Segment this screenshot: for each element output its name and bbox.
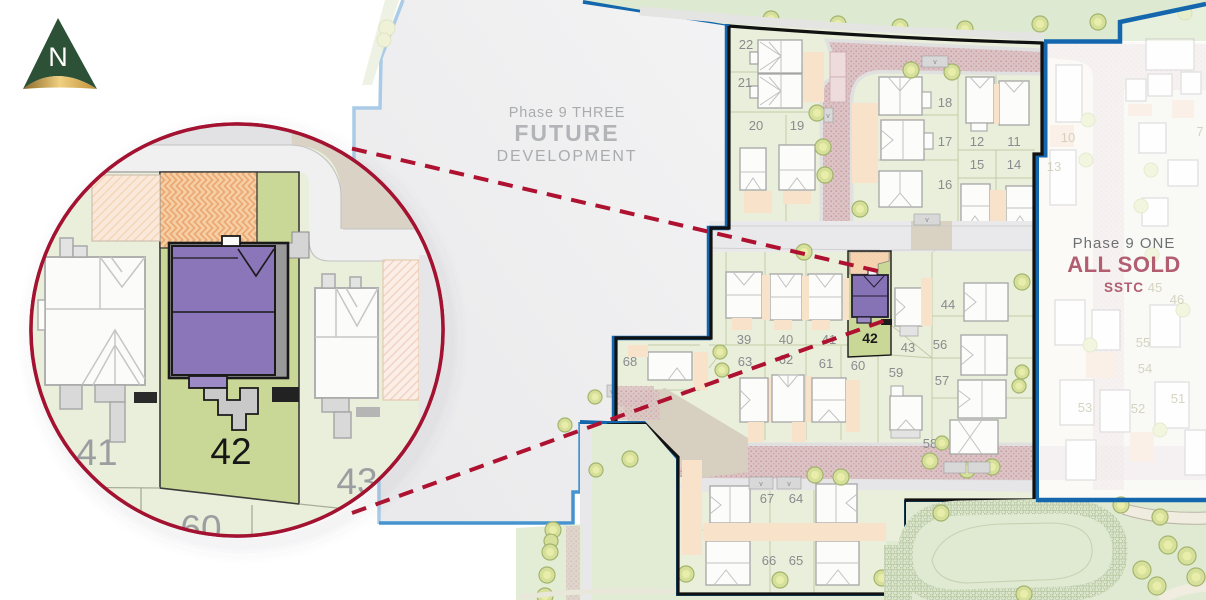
svg-text:39: 39 <box>737 332 751 347</box>
svg-text:66: 66 <box>762 553 776 568</box>
svg-text:18: 18 <box>938 95 952 110</box>
svg-text:42: 42 <box>210 431 251 472</box>
svg-text:54: 54 <box>1138 361 1152 376</box>
svg-text:12: 12 <box>970 134 984 149</box>
svg-text:FUTURE: FUTURE <box>514 120 619 146</box>
svg-text:20: 20 <box>749 118 763 133</box>
svg-text:57: 57 <box>935 373 949 388</box>
svg-text:55: 55 <box>1136 335 1150 350</box>
svg-text:11: 11 <box>1007 134 1021 149</box>
svg-text:14: 14 <box>1007 157 1021 172</box>
svg-text:v: v <box>759 481 763 488</box>
svg-text:Phase 9 ONE: Phase 9 ONE <box>1073 235 1176 252</box>
svg-text:53: 53 <box>1078 400 1092 415</box>
svg-text:67: 67 <box>760 491 774 506</box>
svg-text:15: 15 <box>970 157 984 172</box>
svg-text:22: 22 <box>739 37 753 52</box>
svg-text:Phase 9 THREE: Phase 9 THREE <box>509 105 626 121</box>
svg-text:7: 7 <box>1196 124 1203 139</box>
svg-text:17: 17 <box>938 134 952 149</box>
svg-text:51: 51 <box>1171 391 1185 406</box>
svg-text:52: 52 <box>1131 401 1145 416</box>
svg-text:59: 59 <box>889 365 903 380</box>
svg-text:DEVELOPMENT: DEVELOPMENT <box>497 148 638 165</box>
svg-text:40: 40 <box>779 332 793 347</box>
svg-text:44: 44 <box>941 297 955 312</box>
svg-text:64: 64 <box>789 491 803 506</box>
svg-text:SSTC: SSTC <box>1104 280 1144 295</box>
svg-text:42: 42 <box>862 330 878 346</box>
svg-text:ALL SOLD: ALL SOLD <box>1067 252 1181 277</box>
svg-text:10: 10 <box>1061 130 1075 145</box>
svg-text:61: 61 <box>819 356 833 371</box>
svg-text:21: 21 <box>738 75 752 90</box>
svg-text:v: v <box>787 481 791 488</box>
svg-text:46: 46 <box>1170 292 1184 307</box>
svg-text:13: 13 <box>1047 159 1061 174</box>
svg-text:68: 68 <box>623 354 637 369</box>
svg-text:43: 43 <box>901 340 915 355</box>
svg-text:19: 19 <box>790 118 804 133</box>
svg-text:v: v <box>826 113 830 120</box>
svg-text:16: 16 <box>938 177 952 192</box>
svg-text:60: 60 <box>851 358 865 373</box>
svg-text:63: 63 <box>738 354 752 369</box>
svg-text:v: v <box>933 59 937 66</box>
svg-text:v: v <box>925 217 929 224</box>
svg-text:65: 65 <box>789 553 803 568</box>
svg-text:45: 45 <box>1148 280 1162 295</box>
svg-text:56: 56 <box>933 337 947 352</box>
svg-text:N: N <box>48 42 68 72</box>
